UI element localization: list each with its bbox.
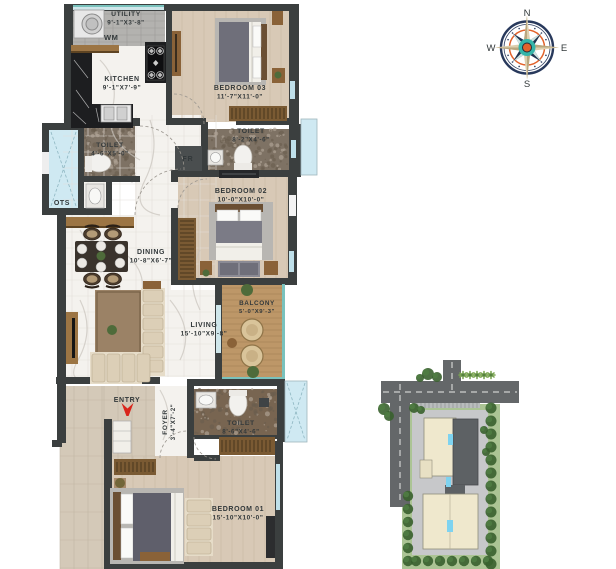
svg-text:BEDROOM 0210'-0"X10'-0": BEDROOM 0210'-0"X10'-0" xyxy=(215,188,267,204)
svg-text:ENTRY: ENTRY xyxy=(114,397,140,404)
svg-text:N: N xyxy=(524,8,531,19)
svg-text:TOILET8'-2"X4'-6": TOILET8'-2"X4'-6" xyxy=(232,128,269,143)
svg-text:UTILITY9'-1"X3'-8": UTILITY9'-1"X3'-8" xyxy=(107,11,144,26)
svg-text:TOILET4'-6"X5'-0": TOILET4'-6"X5'-0" xyxy=(91,142,128,157)
svg-text:BEDROOM 0115'-10"X10'-0": BEDROOM 0115'-10"X10'-0" xyxy=(212,506,264,522)
svg-text:WM: WM xyxy=(104,33,119,42)
svg-text:BEDROOM 0311'-7"X11'-0": BEDROOM 0311'-7"X11'-0" xyxy=(214,85,266,101)
svg-text:W: W xyxy=(487,43,496,54)
svg-text:FR: FR xyxy=(182,156,193,163)
svg-text:KITCHEN9'-1"X7'-9": KITCHEN9'-1"X7'-9" xyxy=(103,76,141,92)
svg-text:TOILET8'-6"X4'-6": TOILET8'-6"X4'-6" xyxy=(222,420,259,435)
svg-text:E: E xyxy=(561,43,567,54)
svg-text:OTS: OTS xyxy=(54,200,70,207)
svg-text:S: S xyxy=(524,79,530,90)
